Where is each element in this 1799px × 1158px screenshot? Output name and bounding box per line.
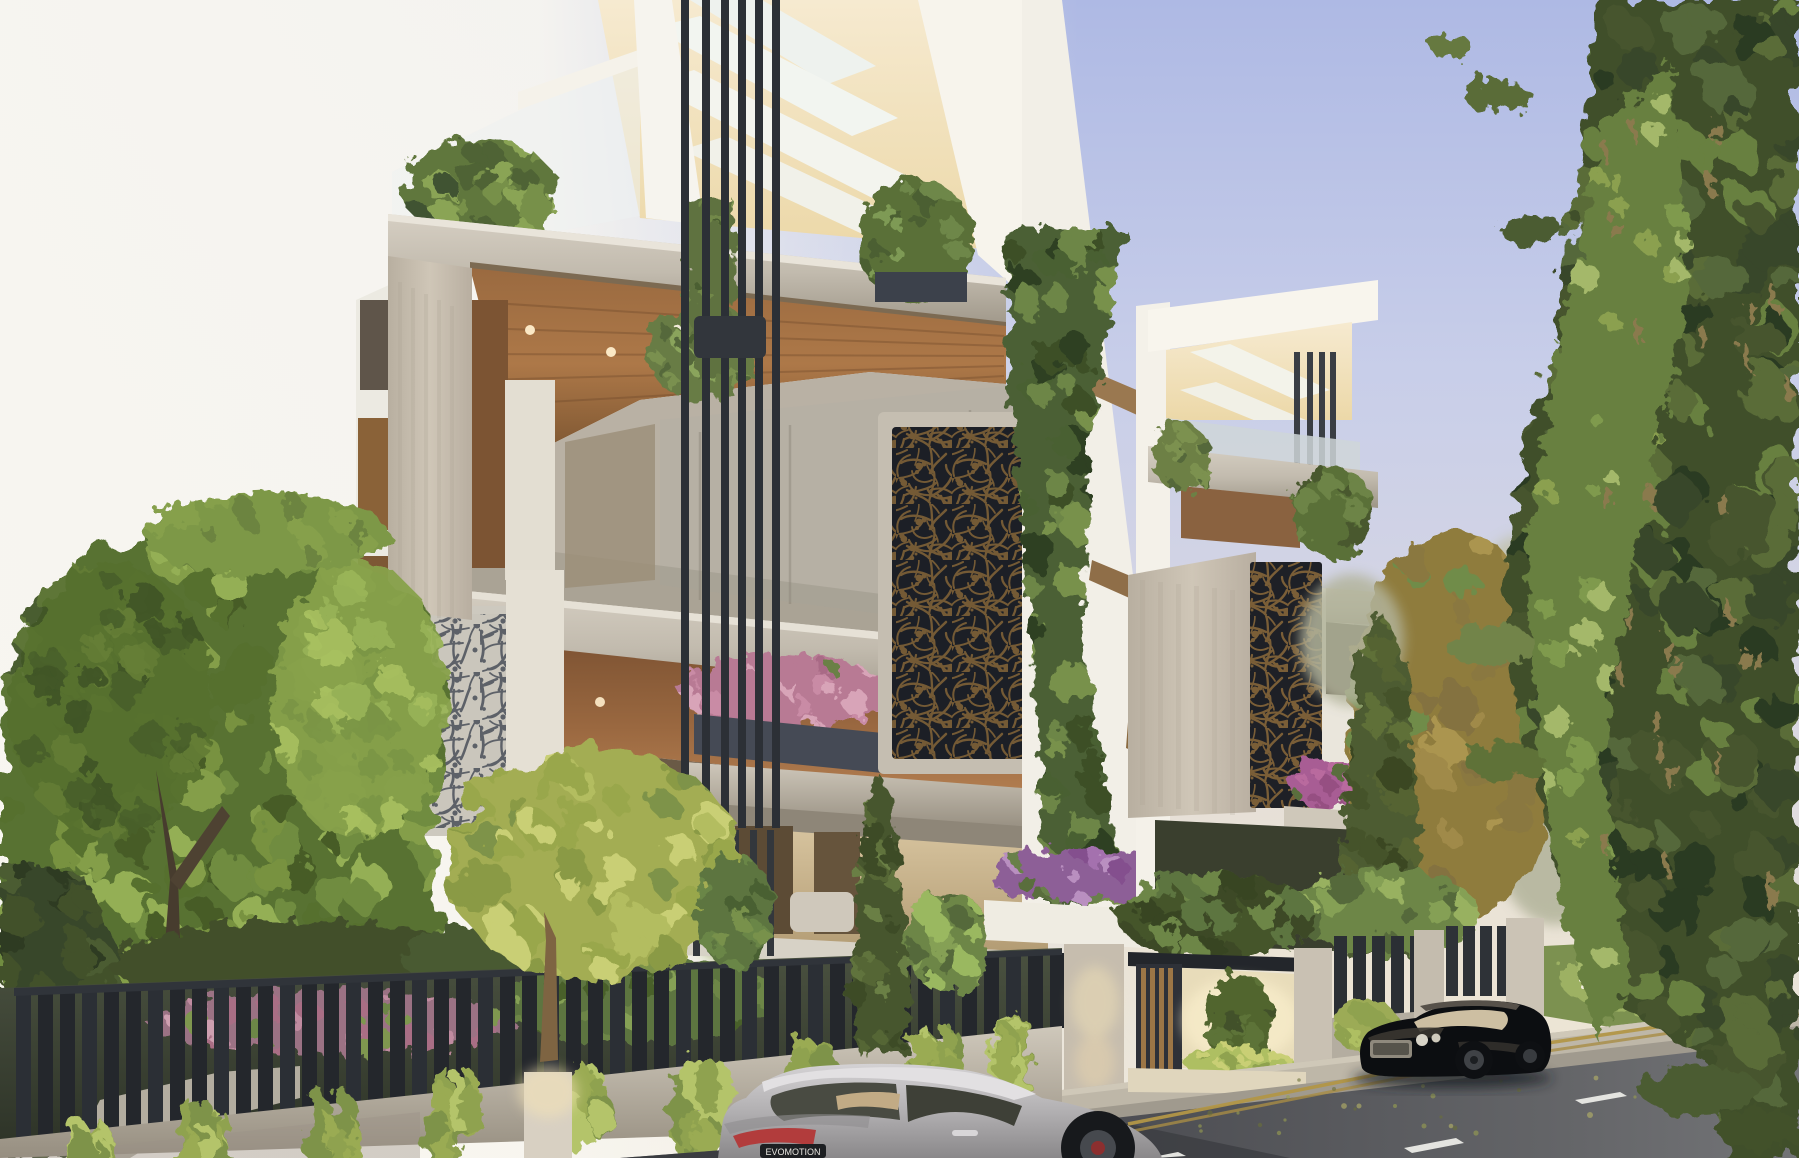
svg-text:EVOMOTION: EVOMOTION bbox=[765, 1147, 820, 1157]
